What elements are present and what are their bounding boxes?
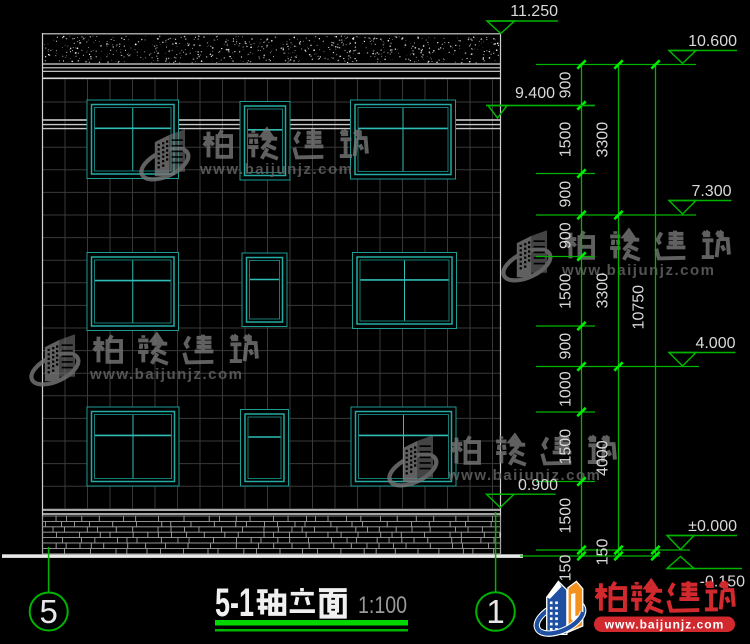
svg-text:1500: 1500 bbox=[558, 122, 575, 158]
svg-text:0.900: 0.900 bbox=[518, 477, 558, 494]
svg-text:1:100: 1:100 bbox=[358, 592, 407, 619]
svg-text:900: 900 bbox=[558, 333, 575, 360]
svg-text:900: 900 bbox=[558, 181, 575, 208]
svg-text:3300: 3300 bbox=[595, 273, 612, 309]
svg-text:900: 900 bbox=[558, 72, 575, 99]
svg-text:5: 5 bbox=[40, 593, 58, 630]
svg-text:900: 900 bbox=[558, 222, 575, 249]
svg-text:www.baijunjz.com: www.baijunjz.com bbox=[604, 618, 725, 632]
svg-text:4000: 4000 bbox=[595, 440, 612, 476]
svg-text:7.300: 7.300 bbox=[691, 183, 731, 200]
svg-text:4.000: 4.000 bbox=[695, 335, 735, 352]
svg-text:3300: 3300 bbox=[595, 122, 612, 158]
svg-text:5-1: 5-1 bbox=[215, 581, 254, 625]
svg-text:1000: 1000 bbox=[558, 371, 575, 407]
svg-text:10.600: 10.600 bbox=[688, 33, 737, 50]
svg-text:1500: 1500 bbox=[558, 429, 575, 465]
svg-text:1500: 1500 bbox=[558, 273, 575, 309]
svg-text:10750: 10750 bbox=[631, 285, 648, 330]
svg-text:1: 1 bbox=[486, 593, 504, 630]
svg-text:www.baijunjz.com: www.baijunjz.com bbox=[199, 161, 353, 178]
svg-text:9.400: 9.400 bbox=[515, 85, 555, 102]
svg-text:150: 150 bbox=[595, 539, 612, 566]
svg-text:150: 150 bbox=[558, 555, 575, 582]
svg-text:±0.000: ±0.000 bbox=[688, 518, 737, 535]
svg-text:11.250: 11.250 bbox=[510, 3, 558, 20]
svg-text:1500: 1500 bbox=[558, 498, 575, 534]
svg-text:www.baijunjz.com: www.baijunjz.com bbox=[89, 366, 243, 383]
svg-text:www.baijunjz.com: www.baijunjz.com bbox=[561, 262, 715, 279]
